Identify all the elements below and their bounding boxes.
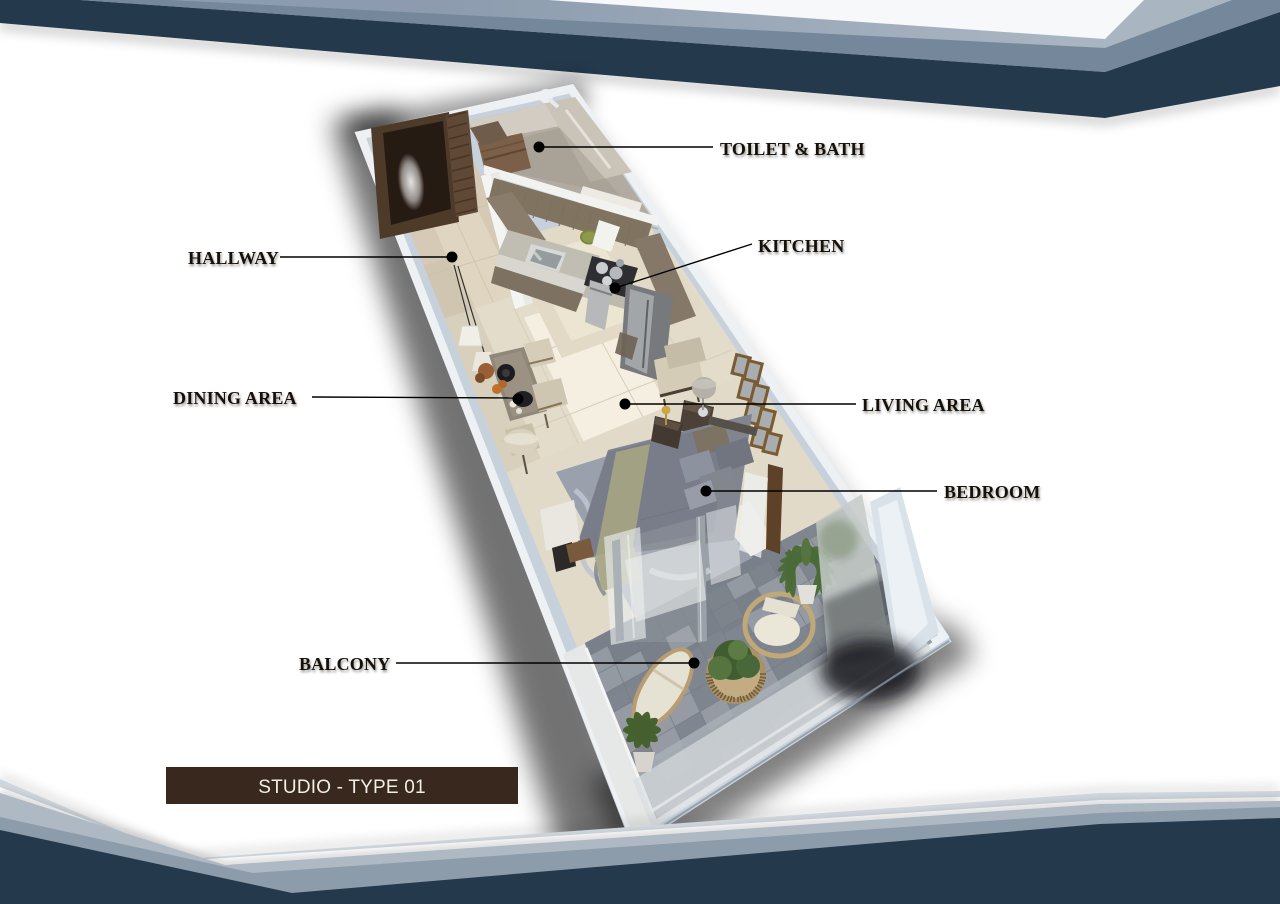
svg-text:DINING AREA: DINING AREA [173, 388, 297, 408]
svg-text:HALLWAY: HALLWAY [188, 248, 279, 268]
svg-text:TOILET & BATH: TOILET & BATH [720, 139, 865, 159]
svg-text:STUDIO - TYPE 01: STUDIO - TYPE 01 [258, 777, 426, 798]
svg-text:KITCHEN: KITCHEN [758, 236, 844, 256]
svg-text:BEDROOM: BEDROOM [944, 482, 1040, 502]
svg-text:BALCONY: BALCONY [299, 654, 390, 674]
svg-text:LIVING AREA: LIVING AREA [862, 395, 985, 415]
